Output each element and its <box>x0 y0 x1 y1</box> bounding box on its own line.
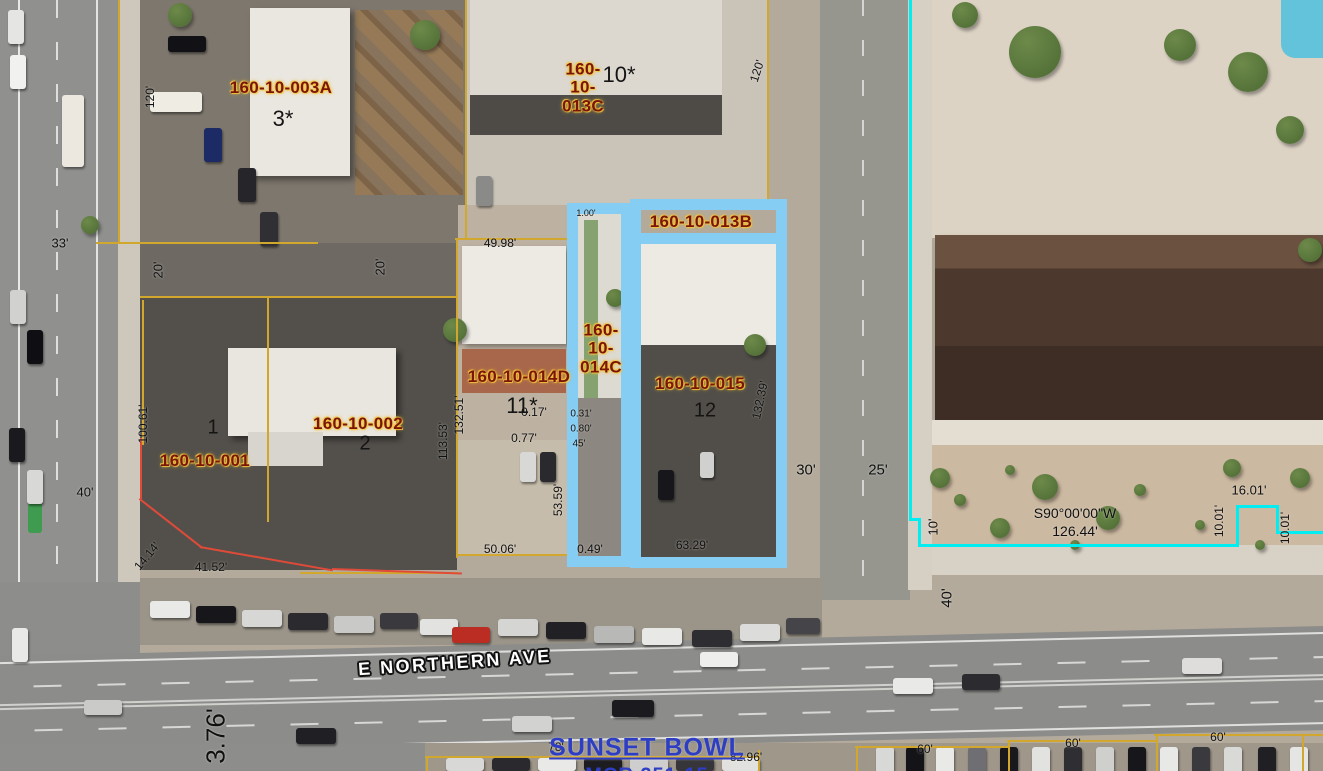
parcel-label: 160-10-014D <box>468 368 571 386</box>
car <box>876 747 894 771</box>
tree <box>1134 484 1146 496</box>
parcel-label: 160- 10- 013C <box>562 60 604 115</box>
car <box>1192 747 1210 771</box>
lot-number-label: 1 <box>207 417 218 440</box>
tree <box>1298 238 1322 262</box>
lot-number-label: 2 <box>359 433 370 456</box>
car <box>786 618 820 634</box>
selected-parcel-highlight <box>638 233 779 244</box>
dimension-label: 40' <box>939 588 956 608</box>
pool <box>1281 0 1323 58</box>
car <box>150 601 190 618</box>
tree <box>81 216 99 234</box>
dimension-label: 25' <box>868 462 888 479</box>
building-002-ext <box>248 432 323 466</box>
dimension-label: 63.29' <box>676 538 708 552</box>
road-left-lane-dash <box>56 0 58 640</box>
dimension-label: 60' <box>1210 730 1226 744</box>
car <box>168 36 206 52</box>
lot-001-002 <box>140 297 457 570</box>
dimension-label: 120' <box>143 86 157 108</box>
car <box>968 747 986 771</box>
car <box>9 428 25 462</box>
tree <box>1255 540 1265 550</box>
parcel-boundary-cyan-segment <box>918 518 921 547</box>
car <box>62 95 84 167</box>
tree <box>1223 459 1241 477</box>
dimension-label: 16.01' <box>1231 483 1266 498</box>
parcel-label: 160-10-013B <box>650 213 753 231</box>
dimension-label: 10' <box>926 519 941 536</box>
car <box>594 626 634 643</box>
parcel-boundary-yellow-segment <box>118 0 120 244</box>
parcel-label: 160-10-001 <box>160 452 250 470</box>
car <box>260 212 278 246</box>
parcel-boundary-cyan-segment <box>1236 505 1239 547</box>
dimension-label: 0.49' <box>577 542 603 556</box>
parcel-label: 160-10-003A <box>230 79 333 97</box>
place-name-label[interactable]: SUNSET BOWL <box>549 734 745 763</box>
road-left-lane-line2 <box>96 0 98 640</box>
dimension-label: 10.01' <box>1212 505 1226 537</box>
lot-number-label: 11* <box>506 393 537 419</box>
parcel-boundary-yellow-segment <box>1008 740 1010 771</box>
dimension-label: 41.52' <box>195 560 227 574</box>
selected-parcel-highlight[interactable] <box>567 203 632 567</box>
lot-upper-parking <box>140 243 465 297</box>
dimension-label: 0.31' <box>570 409 591 420</box>
road-center-line-1 <box>0 673 1323 707</box>
car <box>27 470 43 504</box>
parcel-boundary-yellow-segment <box>767 0 769 200</box>
car <box>8 10 24 44</box>
intersection-left <box>0 582 140 771</box>
parcel-boundary-yellow-segment <box>856 746 858 771</box>
dimension-label: S90°00'00"W <box>1034 505 1117 521</box>
building-014d <box>462 246 566 344</box>
parcel-boundary-red-segment <box>139 498 203 549</box>
tree <box>1290 468 1310 488</box>
tree <box>1005 465 1015 475</box>
dimension-label: 3.76' <box>201 708 232 764</box>
parcel-label: 160-10-002 <box>313 415 403 433</box>
yard-top-center <box>465 0 767 205</box>
lot-number-label: 3* <box>273 106 294 132</box>
tree <box>990 518 1010 538</box>
parcel-boundary-cyan-segment <box>1236 505 1279 508</box>
right-sidewalk <box>932 545 1323 575</box>
car <box>498 619 538 636</box>
dimension-label: 1.00' <box>576 208 595 218</box>
car <box>936 747 954 771</box>
dimension-label: 113.53' <box>436 422 450 460</box>
car <box>1064 747 1082 771</box>
dimension-label: 50.06' <box>484 542 516 556</box>
right-plaza <box>932 0 1323 238</box>
parcel-boundary-yellow-segment <box>96 242 318 244</box>
parcel-label: 160- 10- 014C <box>580 321 622 376</box>
road-right-street <box>820 0 910 600</box>
car <box>12 628 28 662</box>
car <box>242 610 282 627</box>
car <box>10 290 26 324</box>
lot-number-label: 12 <box>694 400 716 423</box>
car <box>10 55 26 89</box>
car <box>1096 747 1114 771</box>
road-lane-dash-1 <box>0 655 1323 689</box>
car <box>1290 747 1308 771</box>
tree <box>1228 52 1268 92</box>
right-building <box>935 235 1323 420</box>
car <box>612 700 654 717</box>
dimension-label: 0.80' <box>570 424 591 435</box>
dimension-label: 33' <box>52 236 69 251</box>
parcel-boundary-cyan-segment <box>918 544 1239 547</box>
car <box>196 606 236 623</box>
dimension-label: 10.01' <box>1278 512 1292 544</box>
car <box>700 652 738 667</box>
parcel-boundary-yellow-segment <box>140 296 458 298</box>
car <box>296 728 336 744</box>
parcel-boundary-yellow-segment <box>1154 734 1323 736</box>
parcel-map-canvas[interactable]: E NORTHERN AVE SUNSET BOWL MCR 251-15 16… <box>0 0 1323 771</box>
tree <box>930 468 950 488</box>
parcel-label: 160-10-015 <box>655 375 745 393</box>
dimension-label: 100.61' <box>136 405 150 444</box>
road-right-dash <box>862 0 864 590</box>
dimension-label: 126.44' <box>1052 523 1098 539</box>
parcel-boundary-red-segment <box>140 438 142 500</box>
dimension-label: 45' <box>572 439 585 450</box>
dimension-label: 0.77' <box>511 431 537 445</box>
car <box>446 758 484 771</box>
tree <box>1195 520 1205 530</box>
car <box>893 678 933 694</box>
car <box>27 330 43 364</box>
car <box>1128 747 1146 771</box>
tree <box>954 494 966 506</box>
road-center-line-2 <box>0 677 1323 711</box>
dimension-label: 53.59' <box>551 484 565 516</box>
bus-lane-marking <box>28 503 42 533</box>
right-walkway <box>932 420 1323 445</box>
car <box>740 624 780 641</box>
car <box>962 674 1000 690</box>
lot-number-label: 10* <box>602 62 635 88</box>
dimension-label: 14.14' <box>131 539 163 573</box>
dimension-label: 20' <box>151 262 166 279</box>
street-name-label: E NORTHERN AVE <box>357 646 552 680</box>
dimension-label: 30' <box>796 462 816 479</box>
car <box>512 716 552 732</box>
car <box>380 613 418 629</box>
car <box>238 168 256 202</box>
car <box>520 452 536 482</box>
car <box>1032 747 1050 771</box>
dimension-label: 60' <box>917 742 933 756</box>
car <box>1224 747 1242 771</box>
car <box>288 613 328 630</box>
car <box>1258 747 1276 771</box>
parcel-boundary-cyan-segment <box>909 0 912 520</box>
dimension-label: 60' <box>1065 736 1081 750</box>
parcel-boundary-yellow-segment <box>465 0 467 240</box>
tree <box>1032 474 1058 500</box>
road-lane-dash-2 <box>0 699 1323 733</box>
tree <box>1276 116 1304 144</box>
car <box>642 628 682 645</box>
car <box>692 630 732 647</box>
car <box>84 700 122 715</box>
dimension-label: 40' <box>77 485 94 500</box>
tree <box>1164 29 1196 61</box>
car <box>1160 747 1178 771</box>
lot-003a-pallets <box>355 10 463 195</box>
tree <box>443 318 467 342</box>
car <box>540 452 556 482</box>
car <box>150 92 202 112</box>
car <box>476 176 492 206</box>
tree <box>168 3 192 27</box>
tree <box>952 2 978 28</box>
car <box>452 627 490 643</box>
sidewalk-left <box>118 0 140 600</box>
tree <box>410 20 440 50</box>
car <box>1182 658 1222 674</box>
dimension-label: 20' <box>373 259 388 276</box>
parcel-boundary-yellow-segment <box>267 296 269 522</box>
car <box>334 616 374 633</box>
parcel-boundary-yellow-segment <box>1302 734 1304 771</box>
parcel-boundary-yellow-segment <box>426 756 428 771</box>
place-name-sublabel: MCR 251-15 <box>585 765 708 771</box>
dimension-label: 120' <box>747 58 767 84</box>
dimension-label: 132.51' <box>452 396 466 435</box>
car <box>204 128 222 162</box>
tree <box>1009 26 1061 78</box>
car <box>492 758 530 771</box>
parcel-boundary-yellow-segment <box>1007 740 1156 742</box>
parcel-boundary-yellow-segment <box>1156 734 1158 771</box>
car <box>546 622 586 639</box>
dimension-label: 49.98' <box>484 236 516 250</box>
